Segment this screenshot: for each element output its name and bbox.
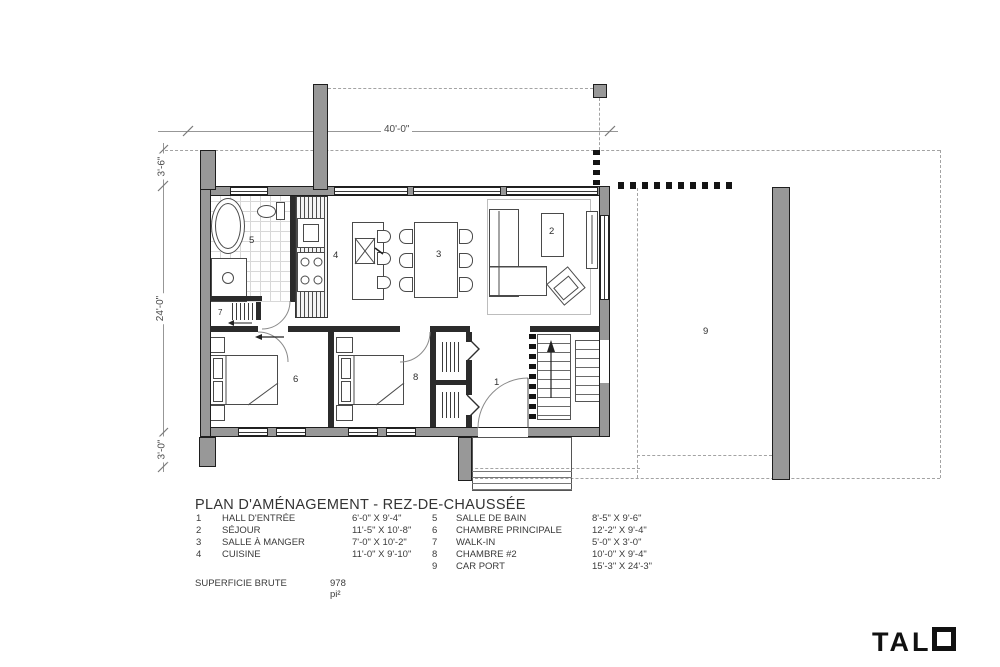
carport-screen-row xyxy=(618,182,736,189)
chair-right-1 xyxy=(459,229,473,244)
pillow-8b xyxy=(341,381,351,402)
wall-stub-entry xyxy=(458,437,472,481)
chair-right-2 xyxy=(459,253,473,268)
carport-dashed-bottom xyxy=(637,455,772,456)
stool-2 xyxy=(377,252,391,265)
legend-row: 3 SALLE À MANGER 7'-0" X 10'-2" xyxy=(196,537,436,549)
legend-name: SÉJOUR xyxy=(222,525,352,537)
side-door-opening xyxy=(600,340,609,383)
toilet-bowl xyxy=(257,205,276,218)
carport-screen-column xyxy=(593,150,600,186)
gross-area-value: 978 pi² xyxy=(330,578,346,600)
window-bedroom1-a xyxy=(238,428,268,436)
wall-walkin-east xyxy=(256,302,261,320)
legend-num: 1 xyxy=(196,513,222,525)
window-dining xyxy=(413,187,501,195)
legend-row: 9 CAR PORT 15'-3" X 24'-3" xyxy=(432,561,692,573)
legend-name: CHAMBRE #2 xyxy=(456,549,592,561)
pergola-dashed-side xyxy=(599,98,600,150)
legend-size: 7'-0" X 10'-2" xyxy=(352,537,436,549)
legend-name: CHAMBRE PRINCIPALE xyxy=(456,525,592,537)
dimension-left-top: 3'-6" xyxy=(156,154,167,180)
stair-guard-dotted xyxy=(529,334,536,420)
legend-num: 6 xyxy=(432,525,456,537)
stair-run-left xyxy=(537,334,571,420)
legend-num: 7 xyxy=(432,537,456,549)
legend-row: 5 SALLE DE BAIN 8'-5" X 9'-6" xyxy=(432,513,692,525)
talo-logo-square-o-icon xyxy=(932,627,956,651)
window-living-east xyxy=(600,215,609,300)
legend-size: 5'-0" X 3'-0" xyxy=(592,537,692,549)
chair-left-1 xyxy=(399,229,413,244)
legend-size: 11'-0" X 9'-10" xyxy=(352,549,436,561)
room-label-bedroom2: 8 xyxy=(413,372,418,383)
legend-num: 4 xyxy=(196,549,222,561)
legend-row: 2 SÉJOUR 11'-5" X 10'-8" xyxy=(196,525,436,537)
roof-overhang-dashed-right xyxy=(940,150,941,478)
stool-3 xyxy=(377,276,391,289)
legend-name: CAR PORT xyxy=(456,561,592,573)
legend-num: 8 xyxy=(432,549,456,561)
legend-right-column: 5 SALLE DE BAIN 8'-5" X 9'-6" 6 CHAMBRE … xyxy=(432,513,692,573)
wall-bedrooms-divider xyxy=(328,332,334,427)
stool-1 xyxy=(377,230,391,243)
wall-west xyxy=(200,186,211,437)
roof-overhang-dashed-top xyxy=(165,150,940,151)
room-label-bedroom1: 6 xyxy=(293,374,298,385)
nightstand-8a xyxy=(336,337,353,353)
legend-row: 1 HALL D'ENTRÉE 6'-0" X 9'-4" xyxy=(196,513,436,525)
window-bedroom2-a xyxy=(348,428,378,436)
wall-bath-south xyxy=(210,296,262,301)
stair-run-right xyxy=(575,340,601,402)
dimension-left-bottom: 3'-0" xyxy=(156,437,167,463)
wall-stub-southwest xyxy=(199,437,216,467)
wall-corridor-a xyxy=(210,326,258,332)
wall-stair-north xyxy=(530,326,600,332)
toilet-tank xyxy=(276,202,285,220)
window-bedroom2-b xyxy=(386,428,416,436)
legend-size: 6'-0" X 9'-4" xyxy=(352,513,436,525)
carport-wall-east xyxy=(772,187,790,480)
gross-area-label: SUPERFICIE BRUTE xyxy=(195,578,287,589)
pillow-8a xyxy=(341,358,351,379)
window-kitchen xyxy=(334,187,408,195)
legend-left-column: 1 HALL D'ENTRÉE 6'-0" X 9'-4" 2 SÉJOUR 1… xyxy=(196,513,436,561)
closet-rod-lower xyxy=(442,392,462,418)
legend-size: 10'-0" X 9'-4" xyxy=(592,549,692,561)
legend-size: 15'-3" X 24'-3" xyxy=(592,561,692,573)
legend-size: 11'-5" X 10'-8" xyxy=(352,525,436,537)
legend-name: CUISINE xyxy=(222,549,352,561)
nightstand-8b xyxy=(336,405,353,421)
floor-plan-sheet: 40'-0" 3'-6" 24'-0" 3'-0" xyxy=(0,0,1000,667)
front-door-opening xyxy=(478,428,528,437)
window-bathroom xyxy=(230,187,268,195)
legend-name: WALK-IN xyxy=(456,537,592,549)
pillow-6a xyxy=(213,358,223,379)
legend-num: 2 xyxy=(196,525,222,537)
wall-stub-northwest xyxy=(200,150,216,190)
room-label-dining: 3 xyxy=(436,249,441,260)
legend-name: HALL D'ENTRÉE xyxy=(222,513,352,525)
window-bedroom1-b xyxy=(276,428,306,436)
chair-left-3 xyxy=(399,277,413,292)
talo-logo: TAL xyxy=(872,627,956,658)
legend-row: 6 CHAMBRE PRINCIPALE 12'-2" X 9'-4" xyxy=(432,525,692,537)
pillow-6b xyxy=(213,381,223,402)
sofa-chaise xyxy=(489,266,547,296)
carport-dashed-left xyxy=(637,188,638,478)
wall-closet-east-b xyxy=(466,360,472,395)
kitchen-fridge-inner xyxy=(303,224,319,242)
legend-num: 3 xyxy=(196,537,222,549)
legend-num: 9 xyxy=(432,561,456,573)
room-label-walkin: 7 xyxy=(218,308,222,317)
wall-bath-kitchen xyxy=(290,196,295,302)
wall-closet-east-a xyxy=(466,332,472,342)
page-title: PLAN D'AMÉNAGEMENT - REZ-DE-CHAUSSÉE xyxy=(195,497,526,513)
kitchen-stove xyxy=(297,252,325,292)
legend-size: 12'-2" X 9'-4" xyxy=(592,525,692,537)
bathtub-inner xyxy=(215,203,241,249)
legend-size: 8'-5" X 9'-6" xyxy=(592,513,692,525)
dining-table xyxy=(414,222,458,298)
room-label-carport: 9 xyxy=(703,326,708,337)
room-label-kitchen: 4 xyxy=(333,250,338,261)
chair-right-3 xyxy=(459,277,473,292)
post-northeast xyxy=(593,84,607,98)
room-label-living: 2 xyxy=(549,226,554,237)
talo-logo-text: TAL xyxy=(872,627,931,657)
room-label-hall: 1 xyxy=(494,377,499,388)
legend-name: SALLE À MANGER xyxy=(222,537,352,549)
dimension-width: 40'-0" xyxy=(381,124,412,135)
chair-left-2 xyxy=(399,253,413,268)
wall-closet-east-c xyxy=(466,415,472,427)
legend-row: 7 WALK-IN 5'-0" X 3'-0" xyxy=(432,537,692,549)
legend-num: 5 xyxy=(432,513,456,525)
wall-corridor-c xyxy=(430,326,470,332)
privacy-wall-north xyxy=(313,84,328,190)
closet-rod-upper xyxy=(442,342,462,372)
gross-area: SUPERFICIE BRUTE 978 pi² xyxy=(195,578,287,589)
window-living-north xyxy=(506,187,598,195)
legend-row: 8 CHAMBRE #2 10'-0" X 9'-4" xyxy=(432,549,692,561)
vanity-sink xyxy=(222,272,234,284)
legend-name: SALLE DE BAIN xyxy=(456,513,592,525)
dimension-left-main: 24'-0" xyxy=(155,293,166,324)
room-label-bathroom: 5 xyxy=(249,235,254,246)
legend-row: 4 CUISINE 11'-0" X 9'-10" xyxy=(196,549,436,561)
tv-console xyxy=(586,211,598,269)
pergola-dashed-top xyxy=(328,88,593,89)
entry-steps xyxy=(472,466,572,491)
island-sink xyxy=(355,238,375,264)
wall-corridor-b xyxy=(288,326,400,332)
walkin-rod xyxy=(232,303,254,320)
